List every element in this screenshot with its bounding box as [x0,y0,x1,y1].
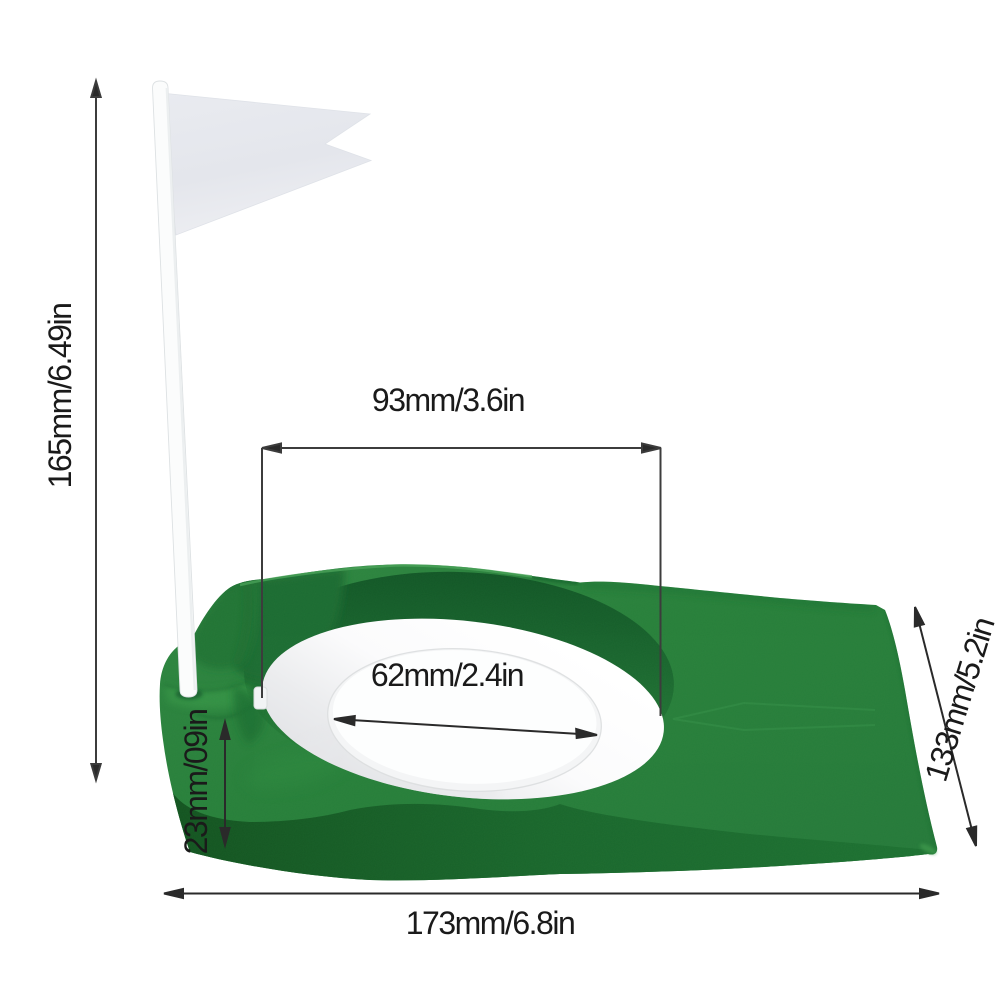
svg-text:173mm/6.8in: 173mm/6.8in [406,905,574,941]
svg-text:165mm/6.49in: 165mm/6.49in [42,304,78,489]
svg-text:93mm/3.6in: 93mm/3.6in [372,382,524,418]
svg-text:23mm/09in: 23mm/09in [178,710,214,855]
svg-text:62mm/2.4in: 62mm/2.4in [371,657,523,693]
